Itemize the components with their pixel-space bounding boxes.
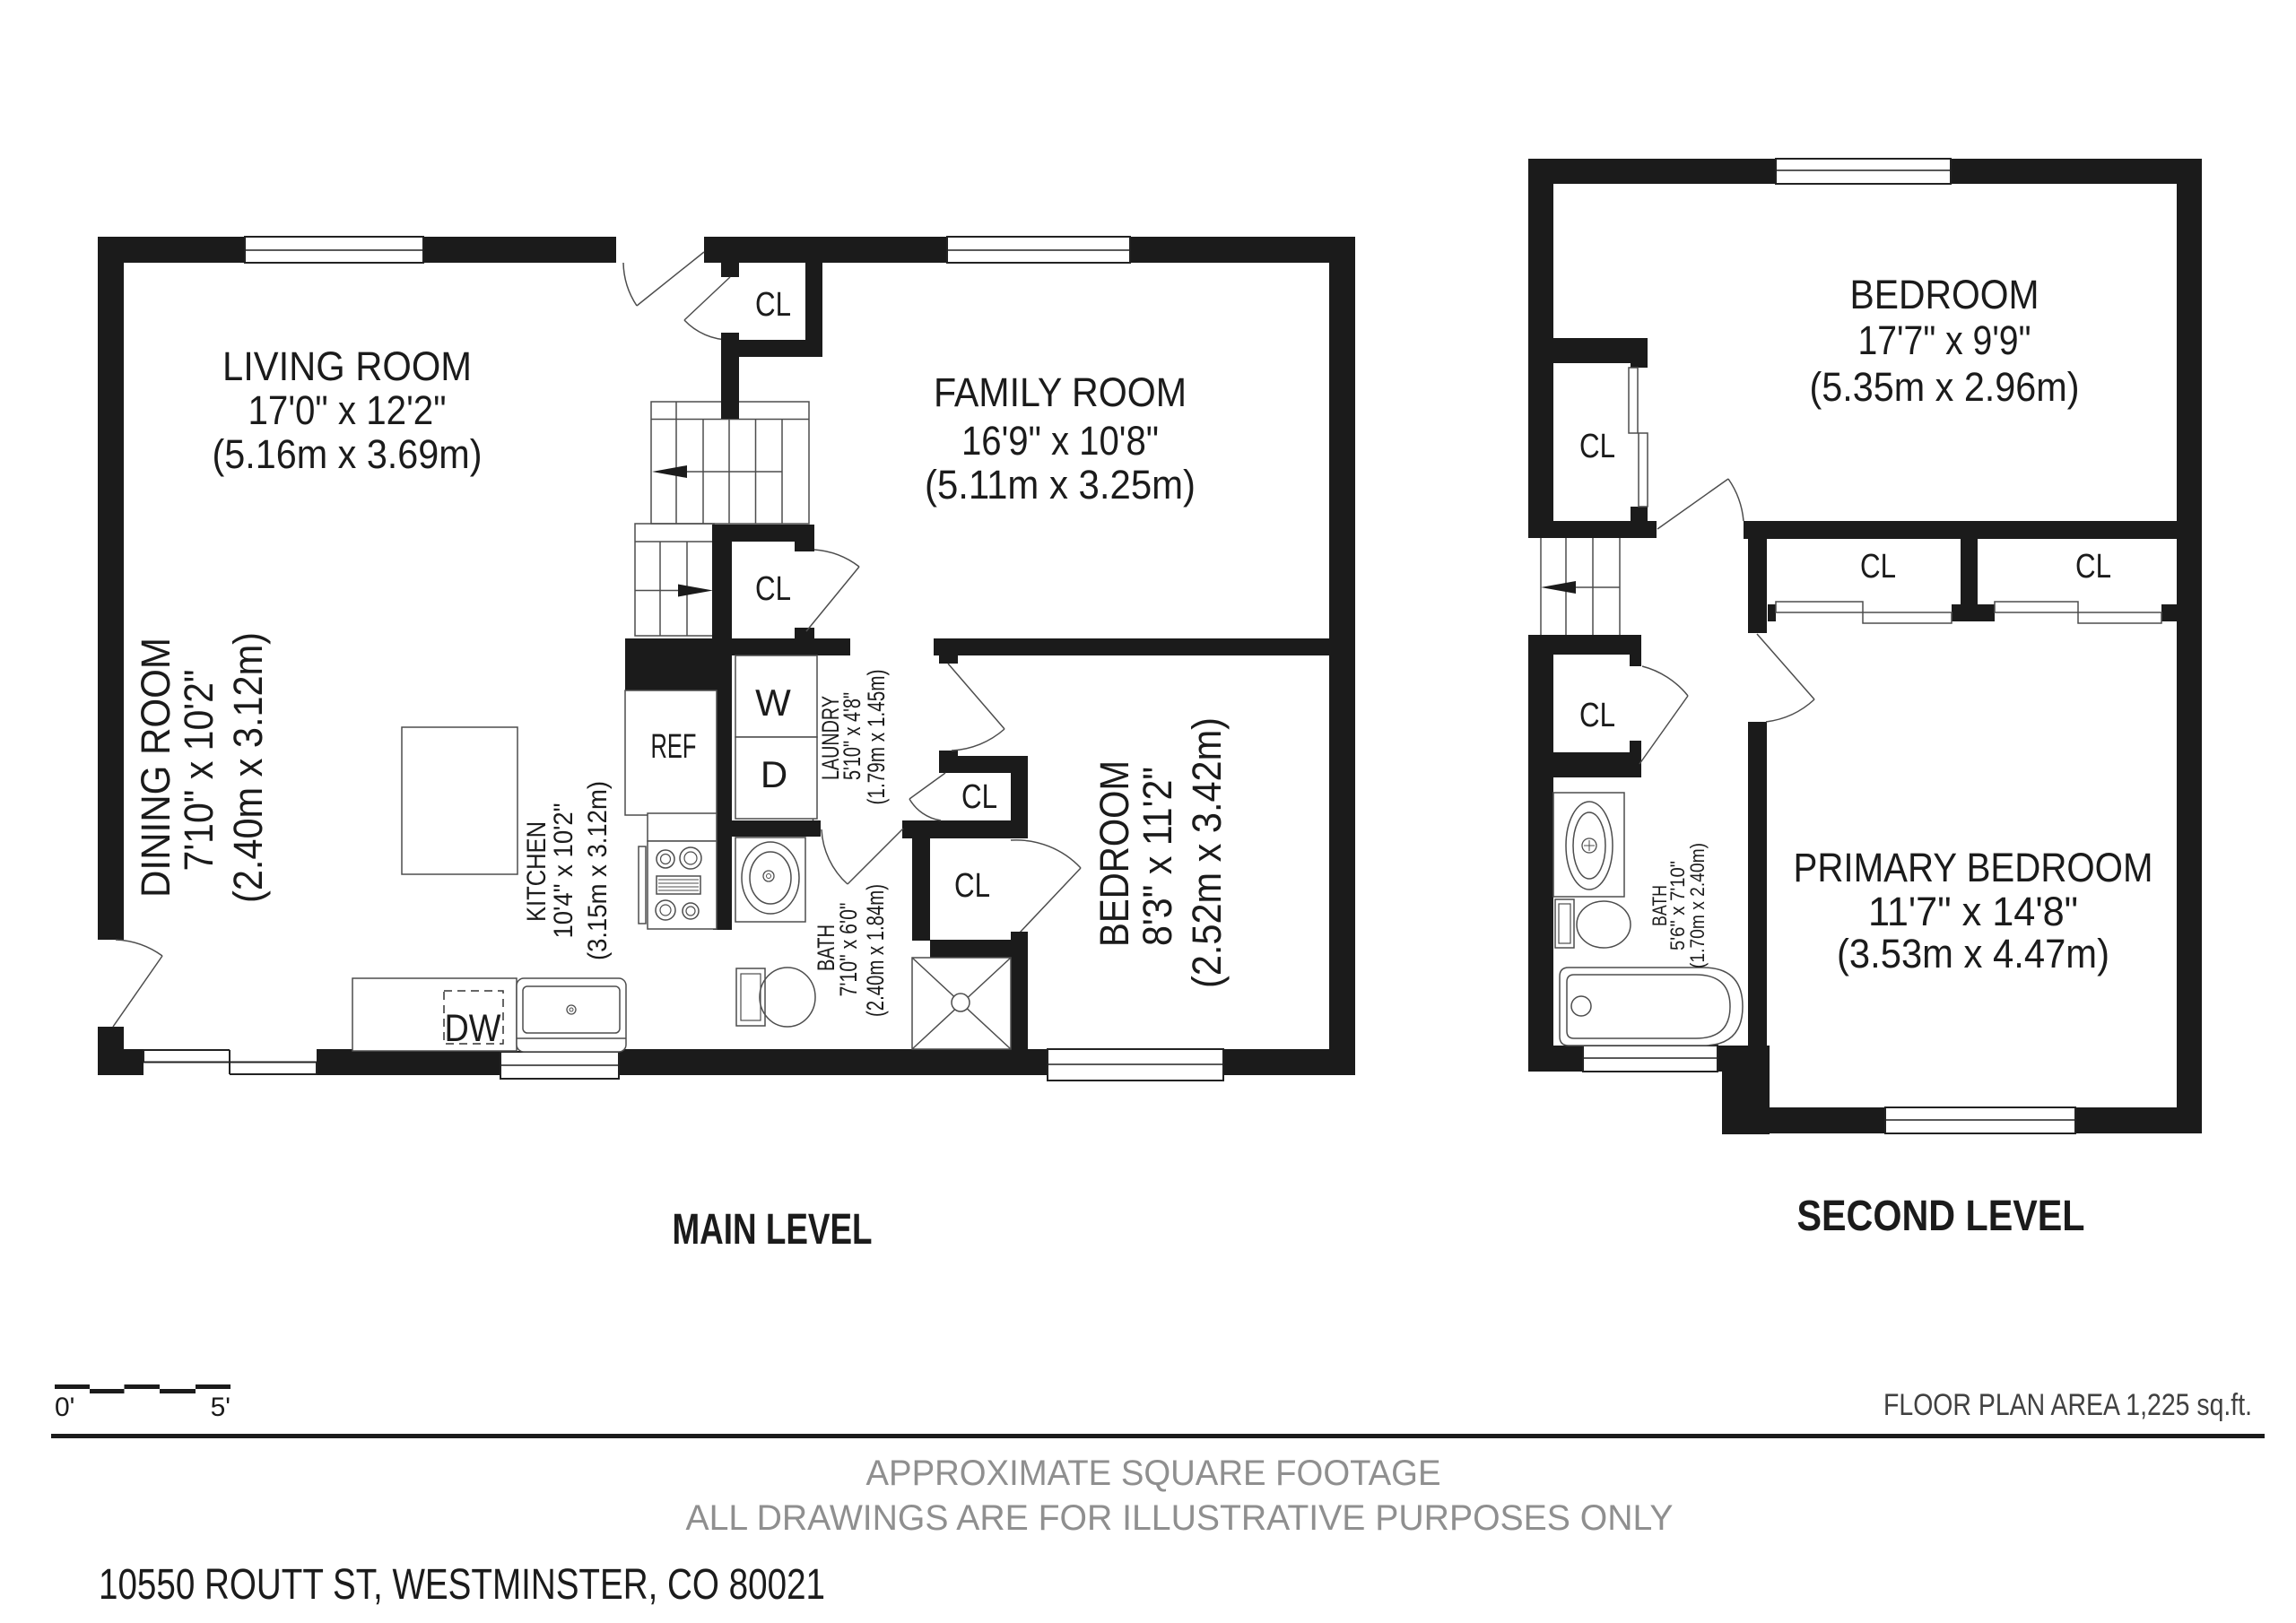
svg-text:(2.52m x 3.42m): (2.52m x 3.42m): [1184, 717, 1230, 988]
svg-text:DW: DW: [445, 1007, 501, 1050]
svg-text:CL: CL: [2075, 548, 2111, 586]
svg-text:(3.53m x 4.47m): (3.53m x 4.47m): [1837, 931, 2109, 976]
svg-text:CL: CL: [961, 778, 997, 816]
svg-text:(3.15m x 3.12m): (3.15m x 3.12m): [583, 781, 613, 960]
svg-text:7'10" x 6'0": 7'10" x 6'0": [835, 903, 862, 997]
svg-text:FAMILY ROOM: FAMILY ROOM: [934, 369, 1187, 415]
svg-text:CL: CL: [1860, 548, 1896, 586]
svg-text:5'10" x 4'8": 5'10" x 4'8": [839, 692, 865, 780]
svg-text:CL: CL: [755, 570, 791, 608]
svg-text:17'7" x 9'9": 17'7" x 9'9": [1858, 317, 2031, 363]
svg-text:17'0" x 12'2": 17'0" x 12'2": [248, 387, 447, 433]
svg-text:MAIN LEVEL: MAIN LEVEL: [673, 1206, 873, 1254]
svg-text:CL: CL: [954, 867, 990, 905]
svg-text:CL: CL: [1579, 697, 1615, 734]
svg-text:DINING ROOM: DINING ROOM: [133, 638, 178, 898]
svg-text:CL: CL: [1579, 428, 1615, 465]
svg-text:D: D: [761, 753, 787, 795]
svg-text:ALL DRAWINGS ARE FOR ILLUSTRAT: ALL DRAWINGS ARE FOR ILLUSTRATIVE PURPOS…: [686, 1498, 1674, 1538]
svg-text:10'4" x 10'2": 10'4" x 10'2": [549, 803, 578, 939]
svg-text:BEDROOM: BEDROOM: [1091, 760, 1137, 947]
svg-text:11'7" x 14'8": 11'7" x 14'8": [1868, 889, 2078, 934]
svg-text:CL: CL: [755, 286, 791, 324]
svg-text:(5.35m x 2.96m): (5.35m x 2.96m): [1810, 364, 2080, 410]
svg-text:PRIMARY BEDROOM: PRIMARY BEDROOM: [1794, 845, 2153, 890]
svg-text:7'10" x 10'2": 7'10" x 10'2": [176, 670, 222, 872]
svg-text:(1.70m x 2.40m): (1.70m x 2.40m): [1686, 843, 1709, 968]
svg-text:8'3" x 11'2": 8'3" x 11'2": [1135, 767, 1180, 946]
svg-text:(2.40m x 3.12m): (2.40m x 3.12m): [225, 632, 271, 903]
svg-text:LIVING ROOM: LIVING ROOM: [222, 343, 472, 389]
svg-text:(5.11m x 3.25m): (5.11m x 3.25m): [925, 462, 1196, 508]
svg-text:KITCHEN: KITCHEN: [522, 821, 552, 922]
svg-text:BEDROOM: BEDROOM: [1850, 272, 2039, 317]
svg-text:(1.79m x 1.45m): (1.79m x 1.45m): [863, 670, 890, 805]
svg-text:REF: REF: [651, 728, 697, 766]
svg-text:0': 0': [55, 1393, 74, 1422]
svg-text:10550 ROUTT ST, WESTMINSTER, C: 10550 ROUTT ST, WESTMINSTER, CO 80021: [99, 1561, 825, 1609]
svg-text:5': 5': [211, 1393, 230, 1422]
svg-text:W: W: [755, 681, 791, 724]
svg-text:APPROXIMATE SQUARE FOOTAGE: APPROXIMATE SQUARE FOOTAGE: [866, 1454, 1441, 1493]
svg-text:(2.40m x 1.84m): (2.40m x 1.84m): [862, 884, 889, 1017]
svg-text:FLOOR PLAN AREA 1,225 sq.ft.: FLOOR PLAN AREA 1,225 sq.ft.: [1883, 1388, 2252, 1422]
svg-text:16'9" x 10'8": 16'9" x 10'8": [961, 418, 1159, 464]
svg-text:SECOND LEVEL: SECOND LEVEL: [1797, 1193, 2085, 1240]
svg-text:(5.16m x 3.69m): (5.16m x 3.69m): [213, 431, 483, 477]
